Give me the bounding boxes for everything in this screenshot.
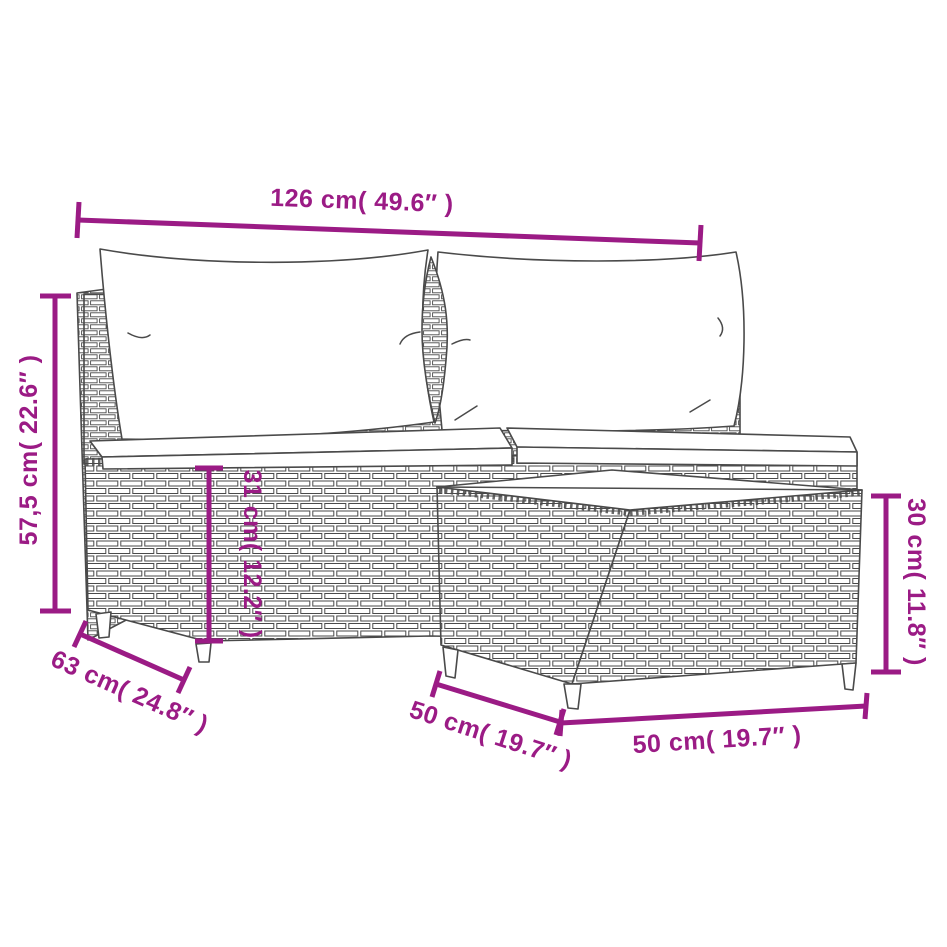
back-cushion-left xyxy=(100,249,434,439)
dim-total-width: 126 cm( 49.6″ ) xyxy=(77,184,701,261)
dim-table-height: 30 cm( 11.8″ ) xyxy=(871,496,930,672)
dim-tick xyxy=(699,225,701,261)
sofa-leg-left xyxy=(96,612,111,638)
sofa-leg-middle xyxy=(196,643,211,662)
dim-total-height: 57,5 cm( 22.6″ ) xyxy=(15,296,71,611)
back-cushion-right xyxy=(436,252,744,431)
dim-label-total-width: 126 cm( 49.6″ ) xyxy=(270,184,454,218)
dim-line xyxy=(78,220,700,243)
table-illustration xyxy=(437,470,862,709)
dim-label-table-height: 30 cm( 11.8″ ) xyxy=(902,498,930,666)
diagram-canvas: 126 cm( 49.6″ ) 57,5 cm( 22.6″ ) 31 cm( … xyxy=(0,0,947,947)
table-leg-left xyxy=(443,647,458,678)
dim-label-sofa-depth: 63 cm( 24.8″ ) xyxy=(47,645,213,739)
dim-table-width: 50 cm( 19.7″ ) xyxy=(560,693,867,759)
dimension-diagram: 126 cm( 49.6″ ) 57,5 cm( 22.6″ ) 31 cm( … xyxy=(0,0,947,947)
dim-label-total-height: 57,5 cm( 22.6″ ) xyxy=(15,355,43,546)
dim-label-table-depth: 50 cm( 19.7″ ) xyxy=(406,696,575,775)
table-leg-front xyxy=(564,684,581,709)
dim-tick xyxy=(865,693,867,719)
dim-sofa-depth: 63 cm( 24.8″ ) xyxy=(47,621,213,739)
dim-label-table-width: 50 cm( 19.7″ ) xyxy=(632,721,802,759)
dim-tick xyxy=(77,202,79,238)
dim-table-depth: 50 cm( 19.7″ ) xyxy=(406,671,575,774)
table-leg-right xyxy=(842,663,856,690)
dim-tick xyxy=(560,710,562,736)
dim-line xyxy=(561,706,866,723)
dim-label-seat-height: 31 cm( 12.2″ ) xyxy=(238,469,266,638)
